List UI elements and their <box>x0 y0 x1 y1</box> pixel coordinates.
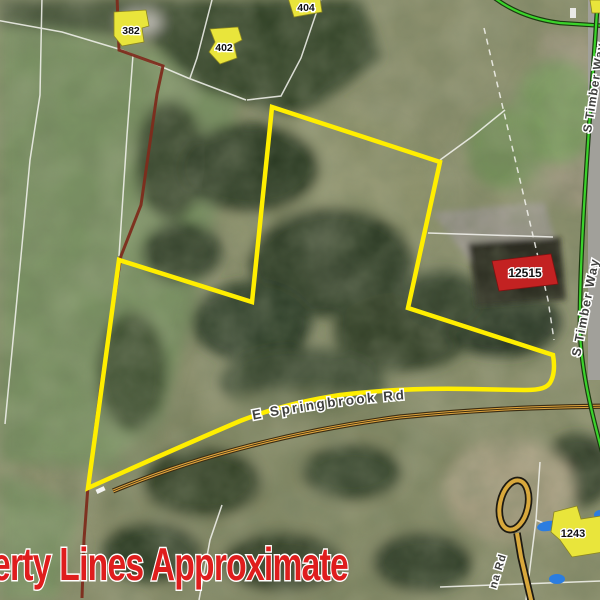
aerial-map-view[interactable]: 382 402 404 12515 1243 E Springbrook Rd … <box>0 0 600 600</box>
map-canvas: 382 402 404 12515 1243 E Springbrook Rd … <box>0 0 600 600</box>
address-label-1243: 1243 <box>561 528 585 540</box>
footprint-edge-clipped <box>590 0 600 13</box>
address-label-12515: 12515 <box>508 266 542 280</box>
caption-property-lines-approximate: erty Lines Approximate <box>0 538 348 590</box>
address-label-404: 404 <box>297 2 315 14</box>
vehicle <box>570 8 576 18</box>
pond-blue <box>549 574 565 584</box>
aerial-terrain <box>0 0 600 600</box>
terrain-texture-light <box>0 0 600 600</box>
address-label-402: 402 <box>215 42 233 54</box>
address-label-382: 382 <box>122 25 140 37</box>
